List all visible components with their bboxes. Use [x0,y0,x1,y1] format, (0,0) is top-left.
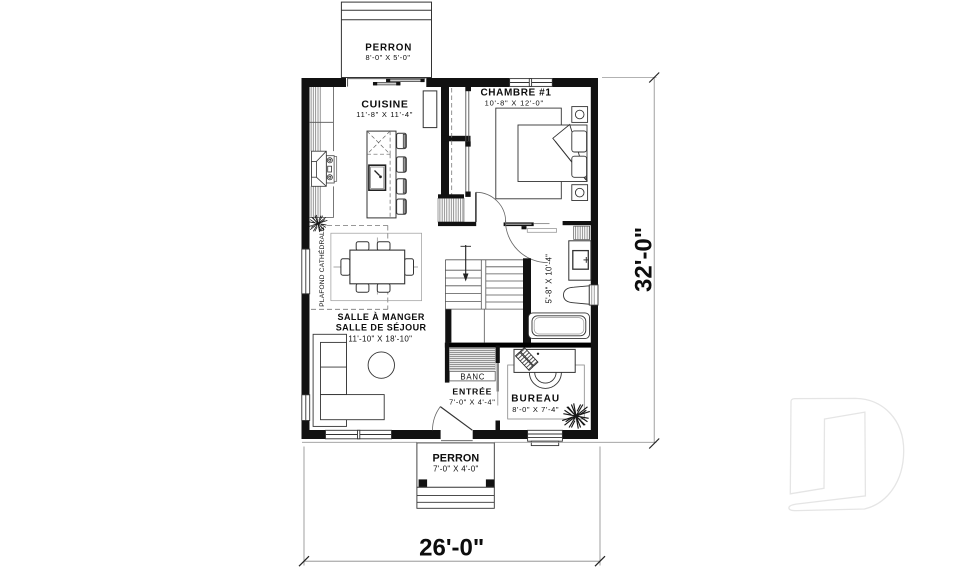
svg-text:7'-0" X 4'-4": 7'-0" X 4'-4" [449,397,495,406]
svg-text:PLAFOND CATHÉDRALE: PLAFOND CATHÉDRALE [317,226,326,307]
svg-text:BANC: BANC [460,373,485,382]
svg-text:PERRON: PERRON [365,43,412,54]
svg-text:ENTRÉE: ENTRÉE [452,387,492,397]
svg-text:5'-8" X 10'-4": 5'-8" X 10'-4" [545,254,554,304]
svg-text:7'-0" X 4'-0": 7'-0" X 4'-0" [433,465,479,474]
svg-text:32'-0": 32'-0" [631,227,658,292]
svg-text:8'-0" X 7'-4": 8'-0" X 7'-4" [512,405,559,414]
svg-text:11'-10" X 18'-10": 11'-10" X 18'-10" [348,334,412,343]
svg-text:CHAMBRE #1: CHAMBRE #1 [480,88,551,99]
svg-text:10'-8" X 12'-0": 10'-8" X 12'-0" [485,98,544,107]
svg-text:BUREAU: BUREAU [511,394,560,405]
svg-text:PERRON: PERRON [433,453,480,465]
svg-text:CUISINE: CUISINE [361,99,408,111]
svg-text:26'-0": 26'-0" [419,534,484,561]
svg-text:SALLE À MANGER: SALLE À MANGER [338,312,425,322]
svg-text:SALLE DE SÉJOUR: SALLE DE SÉJOUR [336,323,427,333]
svg-text:11'-8" X 11'-4": 11'-8" X 11'-4" [356,110,413,119]
svg-text:8'-0" X 5'-0": 8'-0" X 5'-0" [366,53,411,62]
